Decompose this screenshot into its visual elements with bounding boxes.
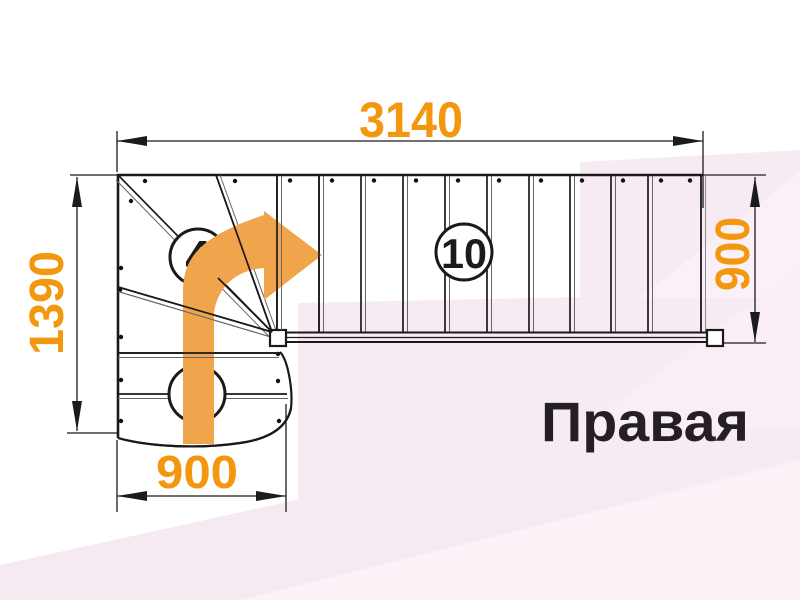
dimension-total-depth — [67, 177, 117, 433]
dimension-total-depth-value: 1390 — [21, 251, 74, 355]
arrowhead-right-icon — [256, 491, 286, 501]
stair-type-label: Правая — [541, 390, 749, 453]
arrowhead-right-icon — [673, 136, 703, 146]
dimension-lower-width-value: 900 — [156, 446, 238, 498]
arrowhead-left-icon — [117, 491, 147, 501]
background-decor — [0, 150, 800, 600]
dimension-total-run-value: 3140 — [359, 92, 463, 148]
stair-plan-canvas: 4 2 10 — [0, 0, 800, 600]
dimension-flight-width-value: 900 — [707, 217, 760, 291]
upper-flight-count-label: 10 — [441, 230, 487, 277]
arrowhead-down-icon — [72, 401, 82, 431]
arrowhead-up-icon — [72, 177, 82, 207]
newel-post-left — [270, 330, 286, 346]
arrowhead-left-icon — [117, 136, 147, 146]
newel-post-right — [707, 330, 723, 346]
stair-plan-drawing: 4 2 10 — [0, 0, 800, 600]
